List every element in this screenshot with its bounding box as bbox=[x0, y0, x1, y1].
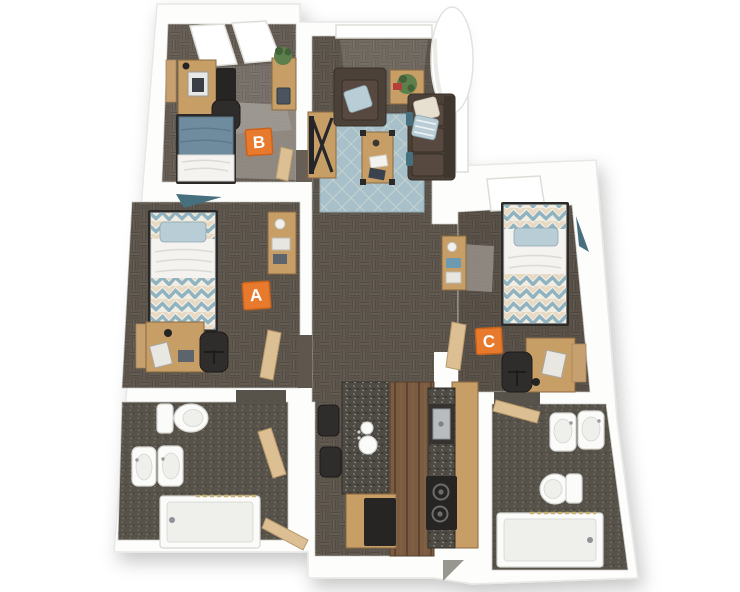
kitchen-island bbox=[342, 382, 396, 548]
floor-plan-canvas: B A C bbox=[0, 0, 740, 592]
bedroom-c-label[interactable]: C bbox=[475, 327, 502, 354]
bedroom-a-desk-chair bbox=[200, 332, 228, 372]
tv-console bbox=[308, 112, 336, 178]
kitchen-sink bbox=[429, 404, 454, 444]
toilet-left bbox=[157, 404, 208, 433]
bathroom-left-doorway bbox=[236, 390, 286, 403]
bedroom-a-desk bbox=[136, 322, 204, 372]
bathtub-right bbox=[497, 513, 603, 567]
bedroom-a-doorway bbox=[298, 335, 312, 388]
bedroom-a-label[interactable]: A bbox=[242, 281, 271, 310]
bedroom-c-dresser bbox=[442, 236, 466, 290]
bedroom-b-label[interactable]: B bbox=[245, 128, 273, 156]
armchair bbox=[334, 68, 386, 126]
bathtub-left bbox=[160, 496, 260, 548]
toilet-right bbox=[540, 474, 582, 504]
bedroom-a-dresser bbox=[268, 212, 296, 274]
kitchen-counter bbox=[426, 382, 478, 548]
bedroom-c-bed bbox=[501, 202, 569, 326]
sinks-left bbox=[132, 446, 183, 486]
coffee-table bbox=[360, 130, 395, 185]
bedroom-b-corkboard bbox=[166, 60, 176, 102]
sectional-sofa bbox=[406, 94, 455, 180]
stove bbox=[426, 476, 457, 530]
bedroom-b-bed bbox=[176, 114, 236, 184]
living-room-window-top bbox=[336, 25, 432, 38]
bedroom-c-desk-chair bbox=[502, 352, 532, 392]
floor-plan-page: B A C bbox=[0, 0, 740, 592]
bedroom-a-bed bbox=[148, 210, 218, 332]
